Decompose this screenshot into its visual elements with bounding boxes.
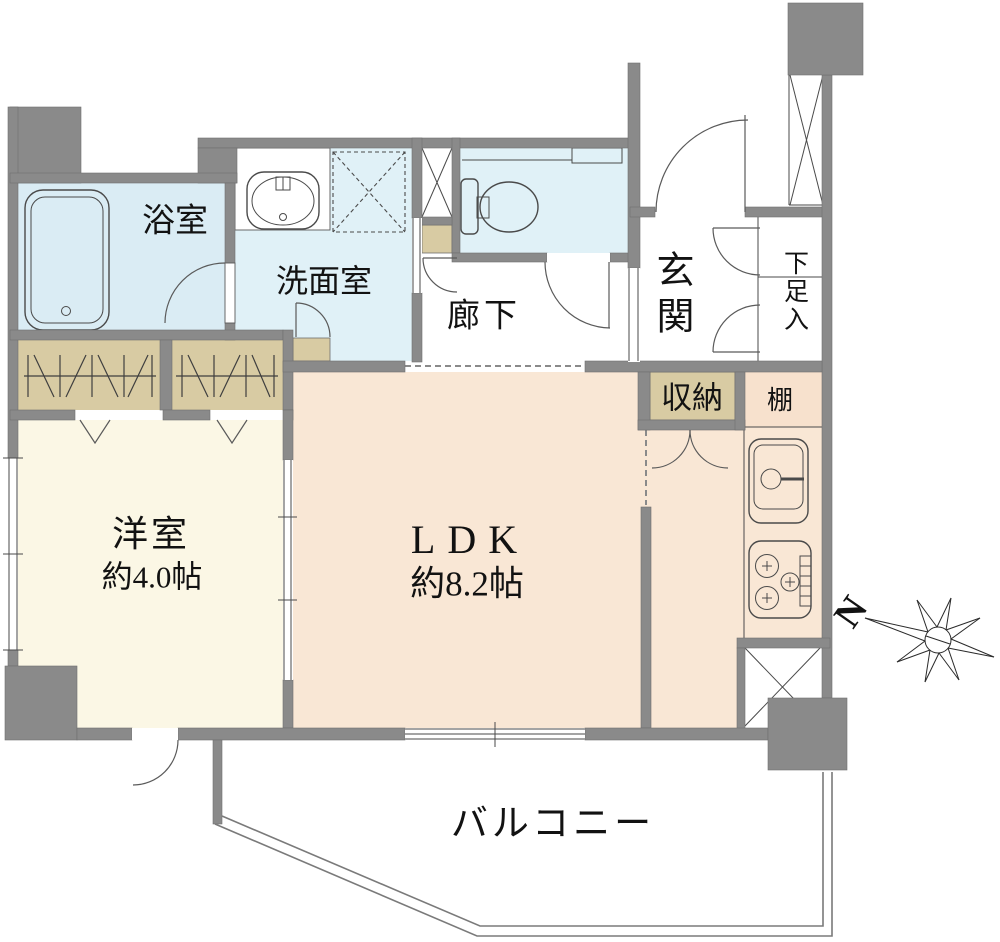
room-closet: [18, 340, 283, 410]
label-washroom: 洗面室: [276, 265, 372, 297]
floor-plan-drawing: [0, 0, 1000, 942]
balcony-door: [133, 740, 178, 785]
label-storage: 収納: [661, 383, 723, 414]
label-shoe-cabinet: 下足入: [782, 250, 807, 334]
toilet-door: [545, 262, 610, 328]
washroom-hall-door: [423, 258, 457, 292]
pillar: [5, 666, 77, 740]
label-balcony: バルコニー: [451, 806, 655, 843]
compass-rose-icon: [865, 598, 994, 682]
doorway: [628, 268, 640, 362]
entrance-door: [656, 115, 748, 212]
balcony-railing: [215, 772, 832, 936]
label-entrance: 玄関: [652, 250, 690, 342]
room-kitchen-corridor: [651, 430, 737, 728]
label-shelf: 棚: [767, 388, 793, 414]
pillar: [768, 698, 847, 770]
label-hallway: 廊下: [447, 301, 521, 334]
doorway: [412, 218, 422, 293]
label-western-room: 洋室: [112, 516, 190, 552]
label-ldk: LDK: [399, 520, 529, 560]
step-box: [293, 338, 330, 361]
room-toilet: [460, 148, 628, 253]
label-western-room-size: 約4.0帖: [102, 562, 203, 593]
floor-plan: 浴室 洗面室 廊下 玄関 下足入 収納 棚 洋室 約4.0帖 LDK 約8.2帖…: [0, 0, 1000, 942]
shoe-cabinet-doors: [713, 228, 760, 352]
step-box: [422, 225, 452, 253]
pillar: [788, 3, 863, 75]
doorway: [547, 253, 610, 262]
doorway: [132, 728, 178, 740]
label-bathroom: 浴室: [142, 206, 208, 239]
label-ldk-size: 約8.2帖: [410, 567, 524, 602]
